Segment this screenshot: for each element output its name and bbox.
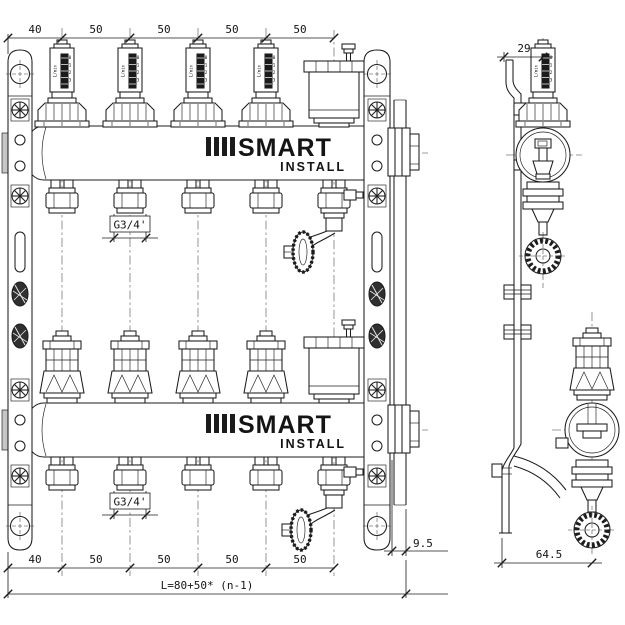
front-view: SMART INSTALL SMART INSTALL xyxy=(2,23,448,598)
union-top-3 xyxy=(182,180,214,213)
thread-label-top: G3/4' xyxy=(102,214,158,242)
logo-sub: INSTALL xyxy=(280,160,346,174)
dim-top-3: 50 xyxy=(157,23,170,36)
logo-sub: INSTALL xyxy=(280,437,346,451)
valve-handle-1 xyxy=(40,331,84,403)
rail-bolt-2 xyxy=(504,325,531,339)
dim-top-1: 40 xyxy=(28,23,41,36)
drain-valve-bottom xyxy=(282,457,363,550)
thread-label-bottom: G3/4' xyxy=(102,491,158,519)
logo-name: SMART xyxy=(238,134,332,162)
technical-drawing-page: 0 1 2 3 L/min xyxy=(0,0,625,625)
logo-name: SMART xyxy=(238,411,332,439)
valve-handle-3 xyxy=(176,331,220,403)
side-view: 29 64.5 xyxy=(492,38,622,568)
flow-meter-1 xyxy=(35,40,89,127)
dim-total-formula: L=80+50* (n-1) xyxy=(161,579,254,592)
hex-fitting-return xyxy=(388,405,419,453)
union-top-4 xyxy=(250,180,282,213)
dim-bottom-4: 50 xyxy=(225,553,238,566)
dim-bottom-3: 50 xyxy=(157,553,170,566)
hex-fitting-supply xyxy=(388,128,419,176)
manifold-drawing: 0 1 2 3 L/min xyxy=(0,0,625,625)
dim-top-2: 50 xyxy=(89,23,102,36)
valve-handle-2 xyxy=(108,331,152,403)
thread-size-supply: G3/4' xyxy=(113,219,146,232)
dim-offset-value: 9.5 xyxy=(413,537,433,550)
dim-bracket-depth-value: 64.5 xyxy=(536,548,563,561)
dim-side-width-value: 29 xyxy=(517,42,530,55)
union-top-1 xyxy=(46,180,78,213)
side-supply-section xyxy=(516,128,570,280)
valve-handle-4 xyxy=(244,331,288,403)
union-top-2 xyxy=(114,180,146,213)
side-valve-handle xyxy=(570,328,614,400)
dim-top-5: 50 xyxy=(293,23,306,36)
mounting-bracket-right xyxy=(363,50,406,550)
dim-bottom-1: 40 xyxy=(28,553,41,566)
flow-meter-3 xyxy=(171,40,225,127)
side-return-section xyxy=(556,403,619,554)
dim-bottom-5: 50 xyxy=(293,553,306,566)
thread-size-return: G3/4' xyxy=(113,496,146,509)
flow-meter-2 xyxy=(103,40,157,127)
flow-meter-4 xyxy=(239,40,293,127)
dim-top-4: 50 xyxy=(225,23,238,36)
dim-bottom-2: 50 xyxy=(89,553,102,566)
logo-bars-icon xyxy=(206,414,211,433)
rail-bolt-1 xyxy=(504,285,531,299)
mounting-bracket-left xyxy=(2,50,34,550)
logo-bars-icon xyxy=(206,137,211,156)
drain-valve-top xyxy=(284,180,363,272)
